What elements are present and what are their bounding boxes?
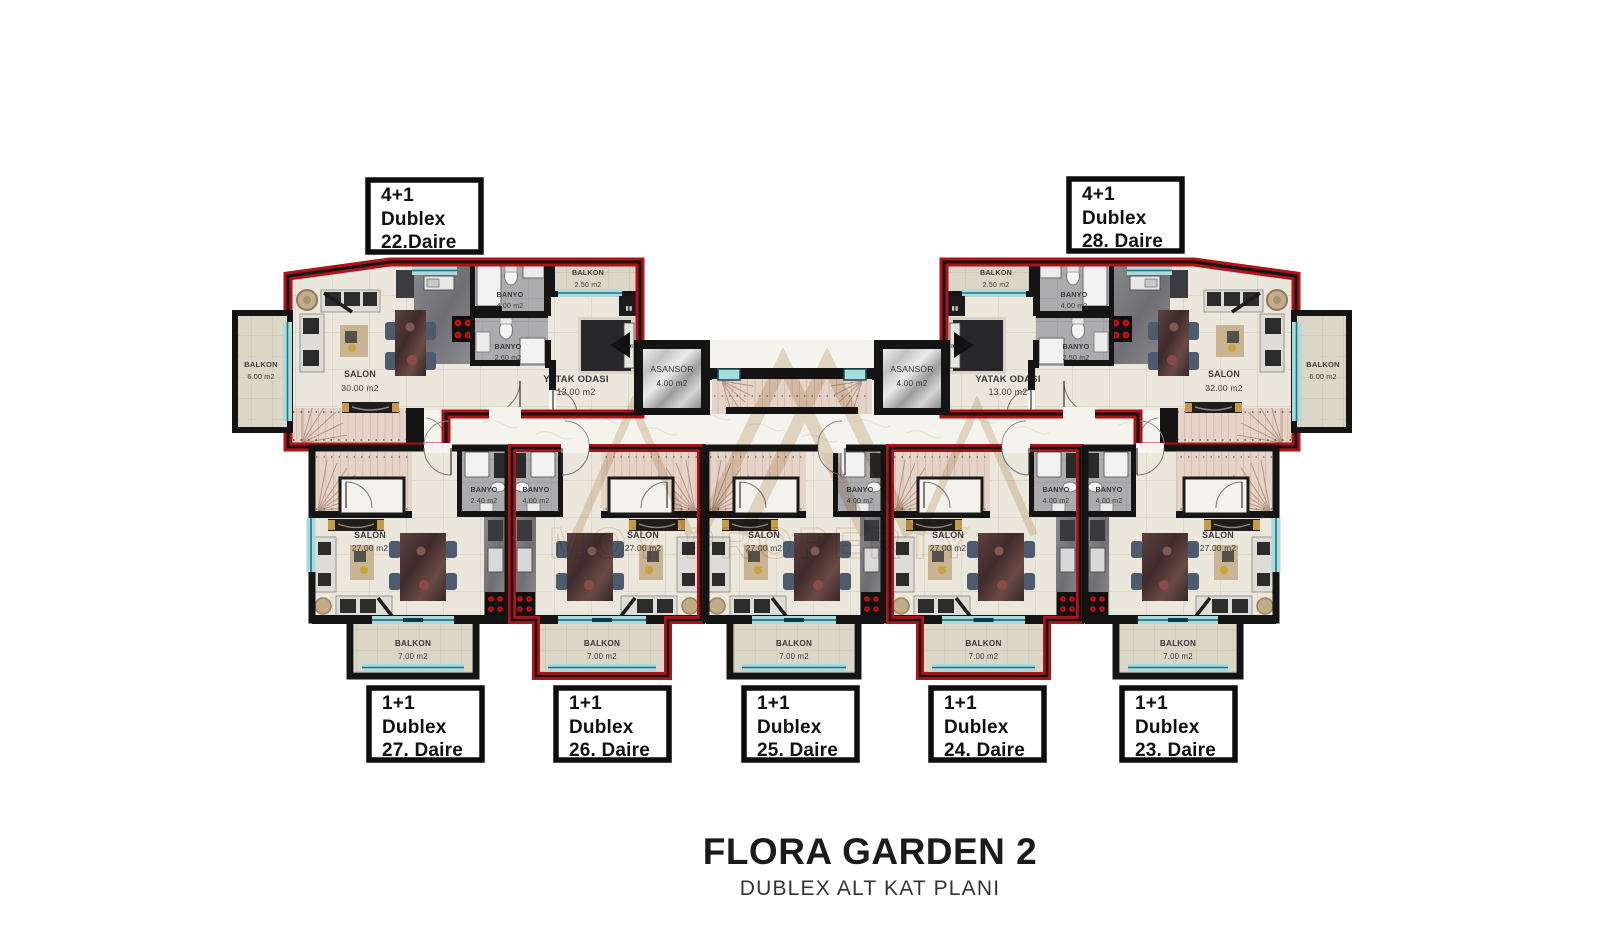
svg-text:BANYO: BANYO — [471, 485, 498, 494]
svg-text:32.00 m2: 32.00 m2 — [1205, 383, 1242, 393]
svg-text:27.00 m2: 27.00 m2 — [1200, 543, 1237, 553]
svg-text:BALKON: BALKON — [1306, 360, 1340, 369]
svg-text:Dublex: Dublex — [382, 717, 447, 738]
svg-text:BALKON: BALKON — [244, 360, 278, 369]
svg-text:BALKON: BALKON — [395, 639, 431, 648]
svg-text:BALKON: BALKON — [1160, 639, 1196, 648]
svg-text:4.00 m2: 4.00 m2 — [1096, 498, 1123, 505]
svg-text:Dublex: Dublex — [944, 717, 1009, 738]
svg-text:7.00 m2: 7.00 m2 — [587, 652, 617, 661]
svg-text:Dublex: Dublex — [1135, 717, 1200, 738]
svg-text:BALKON: BALKON — [776, 639, 812, 648]
svg-text:6.00 m2: 6.00 m2 — [247, 372, 274, 381]
svg-text:BANYO: BANYO — [1063, 342, 1090, 351]
svg-text:4.00 m2: 4.00 m2 — [657, 379, 688, 388]
svg-text:27. Daire: 27. Daire — [382, 740, 463, 761]
svg-text:BANYO: BANYO — [1043, 485, 1070, 494]
svg-text:2.40 m2: 2.40 m2 — [471, 498, 498, 505]
svg-text:23. Daire: 23. Daire — [1135, 740, 1216, 761]
svg-text:BALKON: BALKON — [584, 639, 620, 648]
svg-text:Dublex: Dublex — [1082, 208, 1147, 229]
svg-text:BALKON: BALKON — [980, 268, 1012, 277]
svg-text:Dublex: Dublex — [757, 717, 822, 738]
svg-text:25. Daire: 25. Daire — [757, 740, 838, 761]
svg-text:4.00 m2: 4.00 m2 — [1043, 498, 1070, 505]
svg-text:▮▮: ▮▮ — [951, 306, 958, 312]
svg-text:4+1: 4+1 — [1082, 184, 1115, 205]
svg-text:SALON: SALON — [354, 530, 386, 540]
svg-text:4.00 m2: 4.00 m2 — [897, 379, 928, 388]
svg-text:30.00 m2: 30.00 m2 — [341, 383, 378, 393]
svg-text:MOY PROPERTY: MOY PROPERTY — [549, 519, 975, 568]
svg-text:SALON: SALON — [1208, 369, 1240, 379]
svg-text:DUBLEX ALT KAT PLANI: DUBLEX ALT KAT PLANI — [740, 877, 1001, 900]
svg-text:4+1: 4+1 — [381, 185, 414, 206]
svg-text:7.00 m2: 7.00 m2 — [779, 652, 809, 661]
svg-text:1+1: 1+1 — [1135, 693, 1168, 714]
svg-text:7.00 m2: 7.00 m2 — [1163, 652, 1193, 661]
svg-text:26. Daire: 26. Daire — [569, 740, 650, 761]
svg-text:FLORA GARDEN 2: FLORA GARDEN 2 — [703, 831, 1038, 872]
svg-text:2.50 m2: 2.50 m2 — [575, 282, 602, 289]
svg-text:BANYO: BANYO — [495, 342, 522, 351]
svg-text:BALKON: BALKON — [965, 639, 1001, 648]
svg-text:28. Daire: 28. Daire — [1082, 231, 1163, 252]
svg-text:2.50 m2: 2.50 m2 — [983, 282, 1010, 289]
svg-text:1+1: 1+1 — [757, 693, 790, 714]
svg-text:BANYO: BANYO — [523, 485, 550, 494]
svg-text:ASANSÖR: ASANSÖR — [890, 364, 933, 374]
svg-text:24. Daire: 24. Daire — [944, 740, 1025, 761]
svg-text:1+1: 1+1 — [569, 693, 602, 714]
svg-text:6.00 m2: 6.00 m2 — [1309, 372, 1336, 381]
svg-text:ASANSÖR: ASANSÖR — [650, 364, 693, 374]
svg-text:BALKON: BALKON — [572, 268, 604, 277]
svg-text:BANYO: BANYO — [497, 290, 524, 299]
svg-text:SALON: SALON — [1202, 530, 1234, 540]
svg-text:7.00 m2: 7.00 m2 — [398, 652, 428, 661]
svg-text:22.Daire: 22.Daire — [381, 232, 457, 253]
svg-text:Dublex: Dublex — [381, 209, 446, 230]
svg-text:BANYO: BANYO — [1061, 290, 1088, 299]
svg-text:4.00 m2: 4.00 m2 — [523, 498, 550, 505]
svg-text:SALON: SALON — [344, 369, 376, 379]
svg-text:▮▮: ▮▮ — [625, 306, 632, 312]
svg-text:BANYO: BANYO — [1096, 485, 1123, 494]
svg-text:27.00 m2: 27.00 m2 — [352, 543, 389, 553]
svg-text:1+1: 1+1 — [944, 693, 977, 714]
svg-text:1+1: 1+1 — [382, 693, 415, 714]
svg-text:7.00 m2: 7.00 m2 — [969, 652, 999, 661]
svg-text:Dublex: Dublex — [569, 717, 634, 738]
